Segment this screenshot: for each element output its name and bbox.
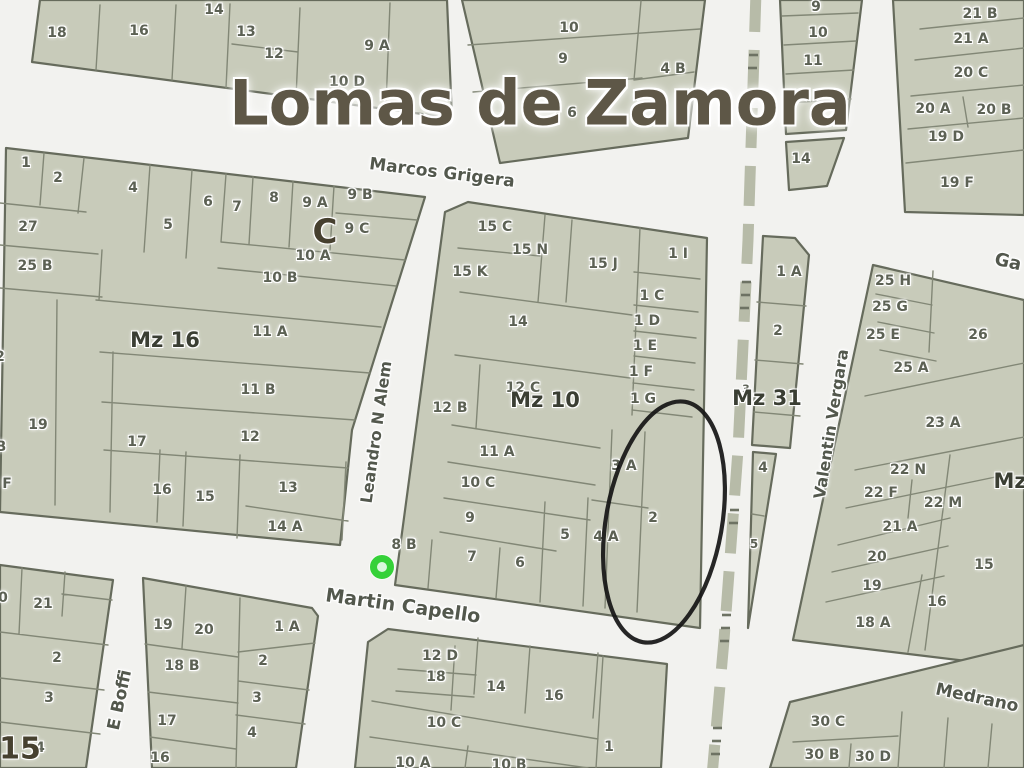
block-mz16 — [0, 148, 425, 545]
block-bottom-right — [770, 645, 1024, 768]
location-marker[interactable] — [370, 555, 394, 579]
block-rail-strip-14 — [786, 138, 844, 190]
block-bottom-left — [0, 565, 113, 768]
block-mz31-south-triangle — [748, 452, 776, 628]
block-mid-right — [793, 265, 1024, 668]
map-canvas[interactable]: 18161413129 A10 D1094 B6910111421 B21 A2… — [0, 0, 1024, 768]
block-bottom-center — [355, 629, 667, 768]
block-top-far-right — [893, 0, 1024, 215]
block-mz10 — [395, 202, 707, 628]
map-title: Lomas de Zamora — [229, 67, 850, 140]
